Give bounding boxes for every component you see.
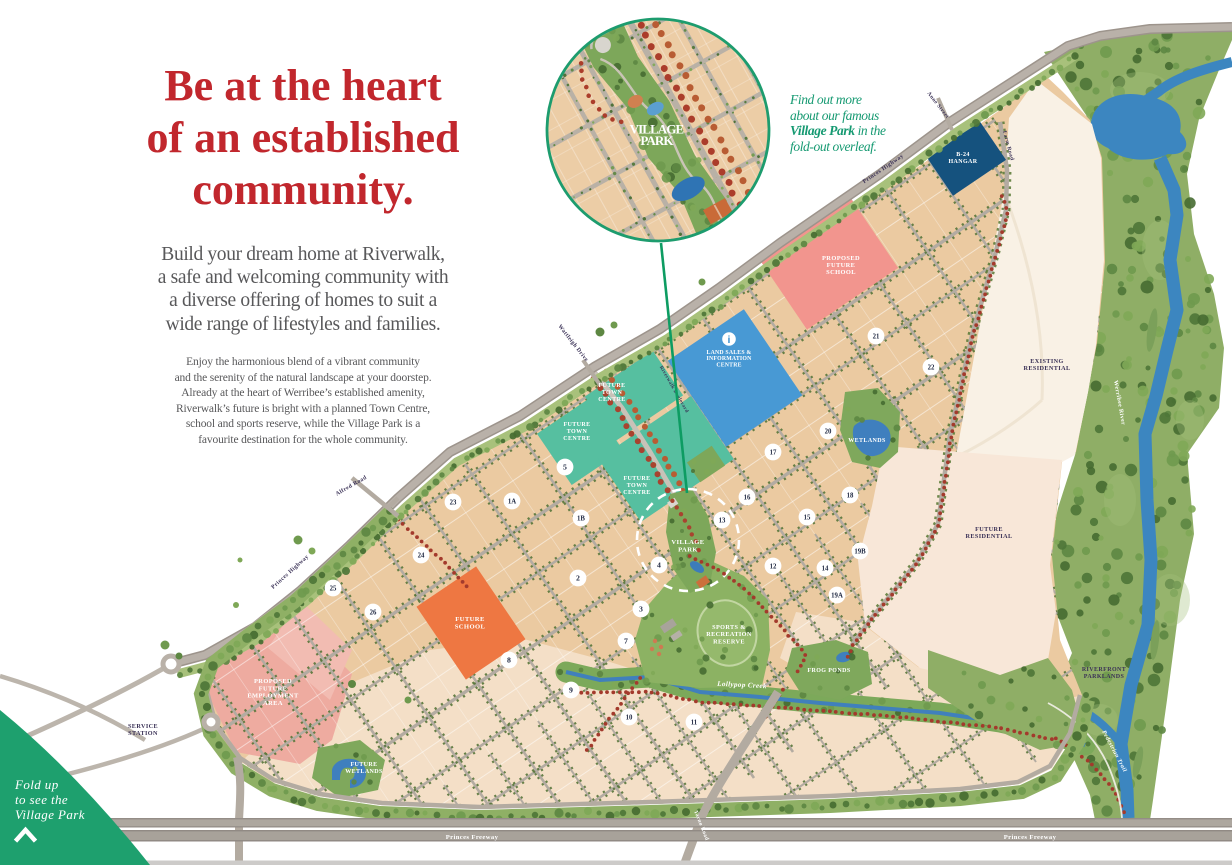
- svg-text:24: 24: [418, 553, 425, 560]
- svg-text:5: 5: [563, 463, 567, 472]
- svg-text:1A: 1A: [508, 499, 516, 506]
- svg-text:4: 4: [657, 561, 661, 570]
- svg-text:FROG PONDS: FROG PONDS: [807, 668, 850, 674]
- svg-text:12: 12: [770, 564, 777, 571]
- svg-text:Princes Freeway: Princes Freeway: [1004, 834, 1057, 841]
- svg-text:PROPOSEDFUTURESCHOOL: PROPOSEDFUTURESCHOOL: [822, 255, 860, 276]
- svg-text:9: 9: [569, 686, 573, 695]
- svg-text:7: 7: [624, 637, 628, 646]
- svg-text:21: 21: [873, 334, 880, 341]
- svg-text:25: 25: [330, 586, 337, 593]
- svg-text:15: 15: [804, 515, 811, 522]
- svg-text:14: 14: [822, 566, 829, 573]
- svg-text:Princes Freeway: Princes Freeway: [446, 834, 499, 841]
- svg-text:RIVERFRONTPARKLANDS: RIVERFRONTPARKLANDS: [1082, 667, 1126, 680]
- svg-text:FUTURESCHOOL: FUTURESCHOOL: [455, 616, 486, 631]
- svg-text:23: 23: [450, 500, 457, 507]
- svg-text:EXISTINGRESIDENTIAL: EXISTINGRESIDENTIAL: [1023, 358, 1070, 372]
- svg-text:26: 26: [370, 610, 377, 617]
- svg-text:19A: 19A: [831, 593, 843, 600]
- svg-text:FUTUREWETLANDS: FUTUREWETLANDS: [345, 762, 383, 775]
- svg-text:11: 11: [691, 720, 698, 727]
- svg-text:10: 10: [626, 715, 633, 722]
- svg-text:19B: 19B: [854, 549, 866, 556]
- svg-text:17: 17: [770, 450, 777, 457]
- svg-text:WETLANDS: WETLANDS: [848, 438, 886, 444]
- svg-text:i: i: [728, 334, 731, 346]
- svg-text:8: 8: [507, 656, 511, 665]
- svg-text:1B: 1B: [577, 516, 585, 523]
- svg-text:2: 2: [576, 574, 580, 583]
- svg-text:20: 20: [825, 429, 832, 436]
- svg-text:SERVICESTATION: SERVICESTATION: [128, 723, 158, 737]
- svg-text:FUTURETOWNCENTRE: FUTURETOWNCENTRE: [563, 422, 590, 442]
- svg-text:13: 13: [719, 518, 726, 525]
- svg-text:18: 18: [847, 493, 854, 500]
- svg-text:FUTURETOWNCENTRE: FUTURETOWNCENTRE: [598, 383, 625, 403]
- svg-text:16: 16: [744, 495, 751, 502]
- svg-text:FUTURETOWNCENTRE: FUTURETOWNCENTRE: [623, 476, 650, 496]
- svg-text:3: 3: [639, 605, 643, 614]
- svg-text:22: 22: [928, 365, 935, 372]
